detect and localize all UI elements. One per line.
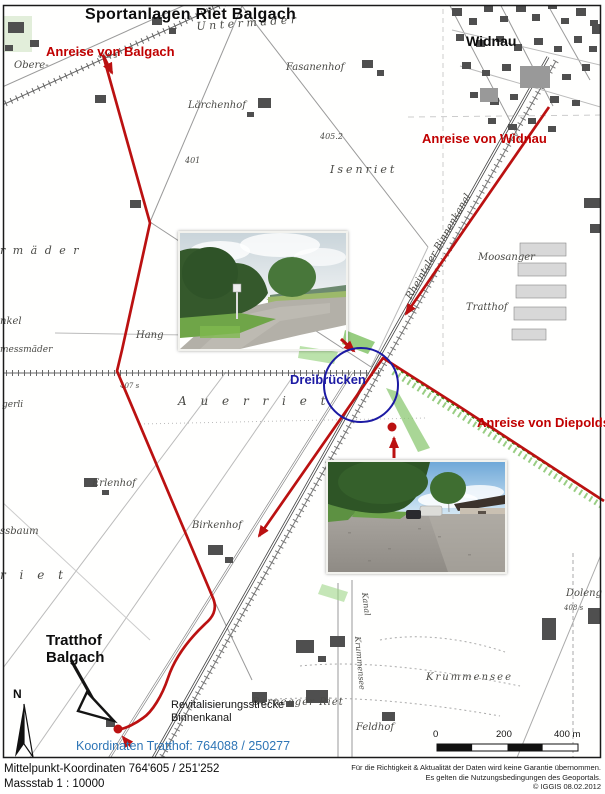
map-label: Fasanenhof xyxy=(286,62,344,73)
map-label: gerli xyxy=(2,400,23,410)
tratthof-pointer-arrow xyxy=(71,660,114,721)
map-label: Krummensee xyxy=(426,672,513,683)
footer-disclaimer-line1: Für die Richtigkeit & Aktualität der Dat… xyxy=(351,763,601,773)
north-label: N xyxy=(13,687,22,701)
footer-center-coordinates: Mittelpunkt-Koordinaten 764'605 / 251'25… xyxy=(4,762,219,777)
footer-disclaimer-line2: Es gelten die Nutzungsbedingungen des Ge… xyxy=(351,773,601,783)
photo-inset-road-junction xyxy=(178,231,348,351)
label-widnau: Widnau xyxy=(466,33,516,49)
map-label: Kanal xyxy=(360,592,372,616)
footer-left: Mittelpunkt-Koordinaten 764'605 / 251'25… xyxy=(4,762,219,791)
map-label: Isenriet xyxy=(330,163,397,176)
map-label: Obere- xyxy=(14,60,49,71)
map-label: Moosanger xyxy=(478,252,535,263)
label-tratthof-balgach: Tratthof Balgach xyxy=(46,632,104,666)
label-tratthof-line1: Tratthof xyxy=(46,632,104,649)
scale-tick-0: 0 xyxy=(433,729,438,740)
label-dreibruecken: Dreibrücken xyxy=(290,372,366,387)
tratthof-location-dot xyxy=(114,725,123,734)
label-koordinaten-tratthof: Koordinaten Tratthof: 764088 / 250277 xyxy=(76,739,290,753)
map-label: messmäder xyxy=(0,345,52,355)
footer-right: Für die Richtigkeit & Aktualität der Dat… xyxy=(351,763,601,792)
map-label: 401 xyxy=(185,156,200,165)
label-tratthof-line2: Balgach xyxy=(46,649,104,666)
parking-lot-photo-graphic xyxy=(328,462,505,572)
photo-inset-parking-lot xyxy=(326,460,507,574)
map-label: Erlenhof xyxy=(92,478,136,489)
road-junction-photo-graphic xyxy=(180,233,346,349)
scale-bar xyxy=(437,744,578,751)
label-anreise-von-balgach: Anreise von Balgach xyxy=(46,44,175,59)
page-title: Sportanlagen Riet Balgach xyxy=(85,6,296,24)
footer-credit: © IGGIS 08.02.2012 xyxy=(351,782,601,792)
scale-tick-400: 400 m xyxy=(554,729,580,740)
map-label: Doleng xyxy=(566,588,602,599)
map-page: U n t e r m ä d e rObere-FasanenhofLärch… xyxy=(0,0,605,794)
map-label: Rheintaler Binnenkanal xyxy=(404,192,474,301)
label-revitalisierung: Revitalisierungsstrecke Binnenkanal xyxy=(171,699,284,725)
scale-tick-200: 200 xyxy=(496,729,512,740)
map-label: Hang xyxy=(136,330,164,341)
map-label: 408 s xyxy=(564,604,583,612)
map-label: A u e r r i e t xyxy=(178,394,330,408)
footer-scale: Massstab 1 : 10000 xyxy=(4,777,219,792)
binnenkanal xyxy=(152,57,548,760)
parking-location-dot xyxy=(388,423,397,432)
buildings xyxy=(5,2,604,727)
map-label: 407 s xyxy=(120,382,139,390)
label-revital-line1: Revitalisierungsstrecke xyxy=(171,699,284,712)
map-label: Birkenhof xyxy=(192,520,242,531)
map-label: nkel xyxy=(0,316,22,327)
label-revital-line2: Binnenkanal xyxy=(171,712,284,725)
map-label: ssbaum xyxy=(0,526,39,537)
route-balgach-line xyxy=(103,55,215,729)
map-label: Tratthof xyxy=(466,302,508,313)
label-anreise-von-widnau: Anreise von Widnau xyxy=(422,131,547,146)
greenhouse-rows xyxy=(512,243,566,340)
map-label: Feldhof xyxy=(356,722,394,733)
map-label: Lärchenhof xyxy=(188,100,246,111)
map-label: 405.2 xyxy=(320,132,343,141)
label-anreise-von-diepoldsau: Anreise von Diepoldsau xyxy=(477,415,605,430)
map-label: Krummensee xyxy=(353,636,367,690)
north-arrow-icon xyxy=(15,704,33,757)
map-label: r i e t xyxy=(0,568,68,582)
map-label: r m ä d e r xyxy=(0,244,81,257)
